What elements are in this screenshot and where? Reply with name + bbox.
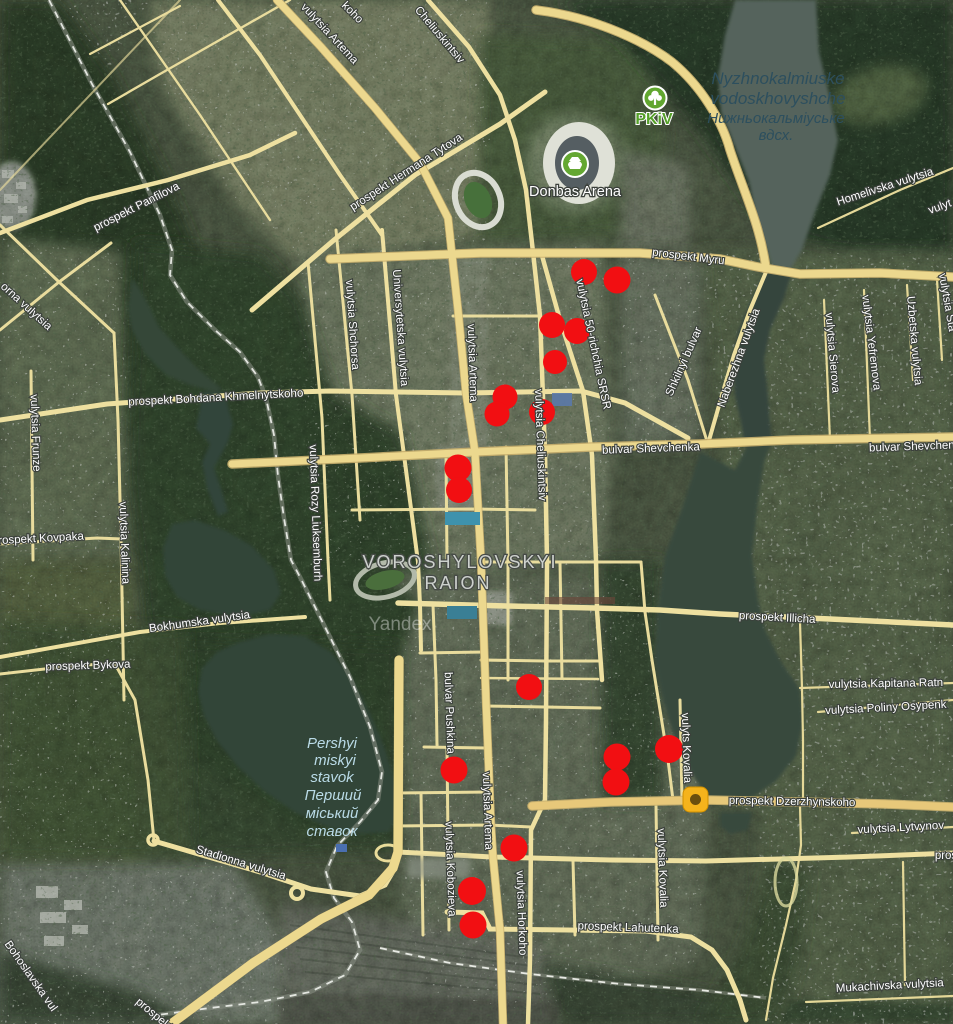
svg-text:stavok: stavok [310,769,355,786]
svg-text:vulytsia Kapitana Ratn: vulytsia Kapitana Ratn [829,677,944,691]
svg-text:vulyts Kovalia: vulyts Kovalia [679,713,693,784]
svg-text:Нижньокальміуське: Нижньокальміуське [707,110,845,127]
svg-text:Pershyi: Pershyi [307,735,358,752]
svg-text:pros: pros [935,850,953,862]
svg-text:VOROSHYLOVSKYI: VOROSHYLOVSKYI [362,552,557,572]
svg-text:RAION: RAION [424,573,491,593]
svg-text:міський: міський [306,805,359,822]
svg-text:Yandex: Yandex [368,614,432,635]
svg-text:Nyzhnokalmiuske: Nyzhnokalmiuske [711,69,844,88]
svg-text:ставок: ставок [306,823,358,840]
svg-text:Donbas Arena: Donbas Arena [529,184,622,200]
svg-text:vodoskhovyshche: vodoskhovyshche [710,89,845,108]
svg-text:вдсх.: вдсх. [759,127,794,144]
svg-text:miskyi: miskyi [314,752,356,769]
svg-text:Перший: Перший [305,787,362,804]
svg-text:PKiV: PKiV [635,111,673,128]
svg-text:prospekt Dzerzhynskoho: prospekt Dzerzhynskoho [729,795,856,809]
